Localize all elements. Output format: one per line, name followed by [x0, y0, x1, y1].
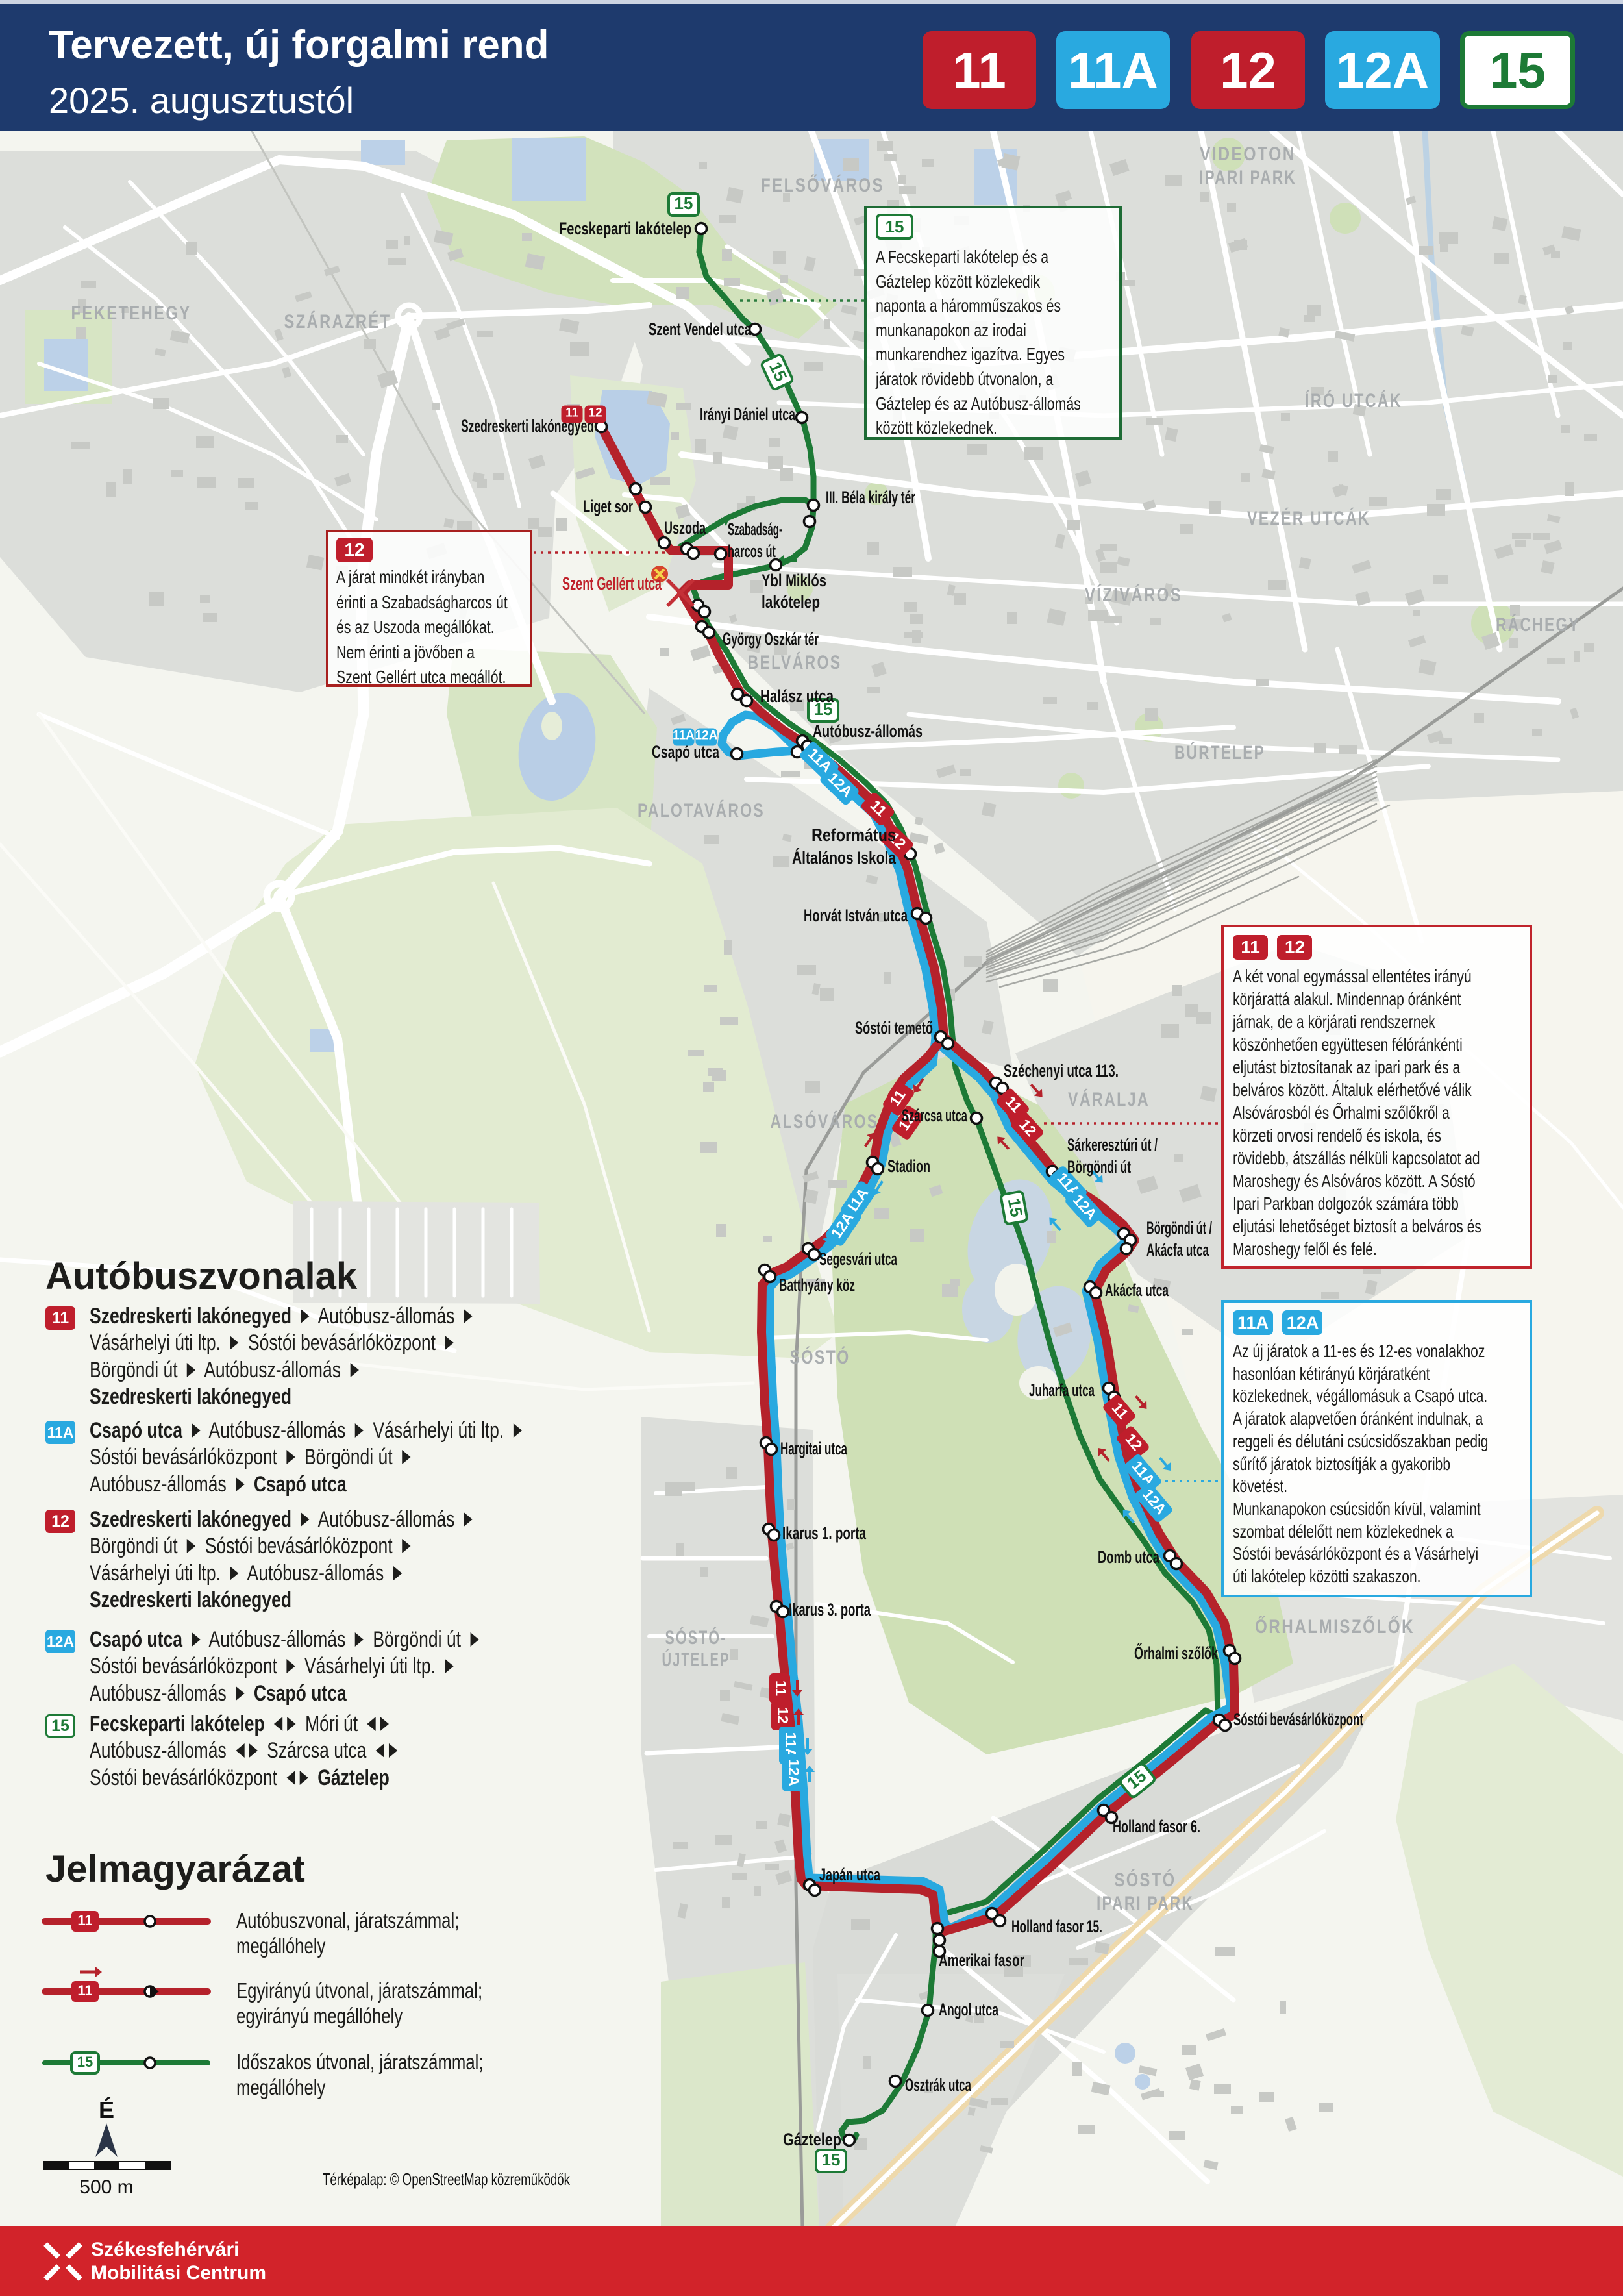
- svg-text:Szárcsa utca: Szárcsa utca: [902, 1106, 968, 1125]
- svg-text:Szent Gellért utca: Szent Gellért utca: [562, 573, 662, 593]
- svg-text:Széchenyi utca 113.: Széchenyi utca 113.: [1004, 1061, 1119, 1080]
- svg-text:500 m: 500 m: [79, 2177, 133, 2198]
- svg-text:Autóbusz-állomás: Autóbusz-állomás: [813, 721, 923, 741]
- svg-text:12: 12: [588, 406, 602, 420]
- svg-text:Őrhalmi szőlők: Őrhalmi szőlők: [1134, 1643, 1219, 1663]
- svg-text:Térképalap: © OpenStreetMap kö: Térképalap: © OpenStreetMap közreműködők: [323, 2169, 571, 2189]
- svg-text:11: 11: [77, 1982, 92, 1999]
- svg-text:15: 15: [1004, 1197, 1027, 1219]
- svg-text:11A: 11A: [673, 729, 695, 743]
- svg-text:Stadion: Stadion: [887, 1156, 930, 1176]
- svg-text:Fecskeparti lakótelep: Fecskeparti lakótelep: [559, 219, 691, 238]
- svg-text:Batthyány köz: Batthyány köz: [779, 1275, 855, 1295]
- svg-text:III. Béla király tér: III. Béla király tér: [826, 488, 915, 507]
- svg-text:12A: 12A: [695, 729, 718, 743]
- svg-text:Szent Vendel utca: Szent Vendel utca: [649, 319, 752, 339]
- svg-text:15: 15: [675, 193, 693, 213]
- svg-text:É: É: [99, 2097, 114, 2123]
- svg-text:Általános Iskola: Általános Iskola: [792, 847, 897, 867]
- svg-text:György Oszkár tér: György Oszkár tér: [723, 629, 819, 649]
- svg-text:Ybl Miklós: Ybl Miklós: [762, 571, 826, 590]
- svg-text:15: 15: [822, 2150, 841, 2169]
- svg-text:VÁRALJA: VÁRALJA: [1068, 1088, 1150, 1110]
- svg-text:Juharfa utca: Juharfa utca: [1029, 1380, 1095, 1400]
- svg-text:12: 12: [774, 1707, 791, 1724]
- svg-text:Börgöndi út: Börgöndi út: [1067, 1157, 1131, 1177]
- svg-text:Hargitai utca: Hargitai utca: [780, 1439, 848, 1458]
- svg-text:ÍRÓ UTCÁK: ÍRÓ UTCÁK: [1305, 390, 1402, 412]
- svg-text:BÚRTELEP: BÚRTELEP: [1174, 742, 1265, 764]
- svg-text:Angol utca: Angol utca: [939, 2000, 999, 2019]
- svg-text:Osztrák utca: Osztrák utca: [905, 2075, 972, 2095]
- svg-text:Amerikai fasor: Amerikai fasor: [939, 1951, 1024, 1970]
- svg-text:VIDEOTON: VIDEOTON: [1200, 143, 1296, 165]
- svg-text:Ikarus 3. porta: Ikarus 3. porta: [789, 1600, 871, 1619]
- svg-text:Akácfa utca: Akácfa utca: [1146, 1240, 1209, 1260]
- svg-text:Holland fasor 15.: Holland fasor 15.: [1011, 1917, 1102, 1936]
- svg-text:Japán utca: Japán utca: [819, 1865, 881, 1884]
- svg-text:Liget sor: Liget sor: [583, 497, 633, 516]
- svg-text:BELVÁROS: BELVÁROS: [748, 651, 842, 673]
- svg-text:Sárkeresztúri út /: Sárkeresztúri út /: [1067, 1135, 1158, 1154]
- svg-text:ÚJTELEP: ÚJTELEP: [662, 1649, 730, 1671]
- svg-text:12A: 12A: [786, 1759, 802, 1786]
- svg-text:Uszoda: Uszoda: [664, 518, 706, 538]
- svg-text:11: 11: [77, 1912, 92, 1928]
- svg-text:ALSÓVÁROS: ALSÓVÁROS: [771, 1110, 879, 1132]
- svg-text:SÓSTÓ: SÓSTÓ: [1115, 1869, 1176, 1891]
- svg-text:RÁCHEGY: RÁCHEGY: [1496, 614, 1580, 636]
- svg-text:IPARI PARK: IPARI PARK: [1199, 167, 1296, 188]
- svg-text:SZÁRAZRÉT: SZÁRAZRÉT: [284, 310, 391, 332]
- svg-text:15: 15: [77, 2054, 93, 2070]
- svg-text:FEKETEHEGY: FEKETEHEGY: [71, 303, 192, 324]
- svg-text:Akácfa utca: Akácfa utca: [1105, 1280, 1169, 1300]
- svg-text:Segesvári utca: Segesvári utca: [819, 1249, 898, 1269]
- svg-text:Halász utca: Halász utca: [760, 686, 834, 706]
- svg-text:Református: Református: [811, 825, 896, 845]
- svg-text:Sóstói bevásárlóközpont: Sóstói bevásárlóközpont: [1233, 1710, 1363, 1729]
- svg-text:Domb utca: Domb utca: [1098, 1547, 1160, 1567]
- svg-text:Szabadság-: Szabadság-: [728, 519, 782, 539]
- svg-text:Irányi Dániel utca: Irányi Dániel utca: [700, 405, 796, 424]
- svg-text:harcos út: harcos út: [728, 542, 776, 561]
- svg-text:lakótelep: lakótelep: [762, 592, 820, 612]
- svg-text:11: 11: [773, 1680, 789, 1697]
- svg-text:IPARI PARK: IPARI PARK: [1096, 1893, 1194, 1914]
- svg-text:Gáztelep: Gáztelep: [783, 2130, 841, 2149]
- svg-text:ŐRHALMISZŐLŐK: ŐRHALMISZŐLŐK: [1255, 1616, 1415, 1638]
- svg-text:Holland fasor 6.: Holland fasor 6.: [1113, 1817, 1200, 1836]
- svg-text:SÓSTÓ: SÓSTÓ: [790, 1346, 850, 1368]
- svg-text:VEZÉR UTCÁK: VEZÉR UTCÁK: [1247, 507, 1370, 529]
- svg-text:FELSŐVÁROS: FELSŐVÁROS: [761, 174, 884, 196]
- svg-text:Ikarus 1. porta: Ikarus 1. porta: [782, 1523, 867, 1543]
- svg-text:11: 11: [565, 406, 579, 420]
- svg-text:Horvát István utca: Horvát István utca: [804, 906, 908, 925]
- svg-text:PALOTAVÁROS: PALOTAVÁROS: [638, 799, 765, 821]
- svg-text:SÓSTÓ-: SÓSTÓ-: [665, 1627, 727, 1649]
- svg-text:Sóstói temető: Sóstói temető: [855, 1018, 933, 1038]
- svg-text:VÍZIVÁROS: VÍZIVÁROS: [1085, 584, 1182, 606]
- svg-text:Börgöndi út /: Börgöndi út /: [1146, 1218, 1212, 1238]
